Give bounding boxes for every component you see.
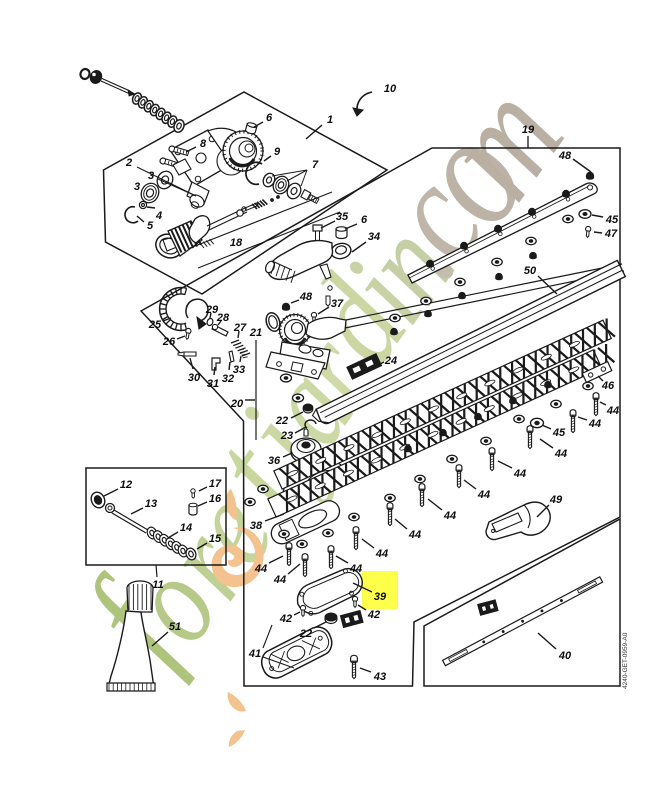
svg-text:22: 22 <box>299 628 312 640</box>
svg-text:7: 7 <box>312 159 319 171</box>
svg-text:49: 49 <box>549 494 563 506</box>
svg-text:23: 23 <box>280 430 293 442</box>
svg-text:28: 28 <box>216 312 230 324</box>
svg-text:44: 44 <box>606 405 619 417</box>
svg-text:43: 43 <box>373 671 386 683</box>
svg-text:34: 34 <box>368 231 380 243</box>
svg-text:9: 9 <box>274 146 281 158</box>
svg-text:40: 40 <box>558 650 572 662</box>
svg-text:42: 42 <box>279 613 292 625</box>
svg-text:16: 16 <box>209 493 222 505</box>
svg-text:12: 12 <box>120 479 132 491</box>
svg-text:44: 44 <box>375 548 388 560</box>
svg-text:22: 22 <box>275 415 288 427</box>
svg-text:44: 44 <box>477 489 490 501</box>
svg-text:33: 33 <box>233 364 245 376</box>
svg-text:45: 45 <box>552 427 566 439</box>
svg-text:50: 50 <box>524 265 537 277</box>
svg-text:42: 42 <box>367 609 380 621</box>
svg-text:13: 13 <box>145 498 157 510</box>
svg-text:3: 3 <box>134 181 140 193</box>
svg-text:20: 20 <box>230 398 244 410</box>
svg-text:35: 35 <box>336 211 349 223</box>
svg-text:39: 39 <box>374 591 387 603</box>
svg-text:10: 10 <box>384 83 397 95</box>
svg-text:14: 14 <box>180 522 192 534</box>
svg-text:44: 44 <box>254 563 267 575</box>
svg-text:4: 4 <box>155 210 162 222</box>
svg-text:44: 44 <box>513 468 526 480</box>
svg-text:36: 36 <box>268 455 281 467</box>
svg-text:1: 1 <box>327 114 333 126</box>
svg-text:37: 37 <box>331 298 344 310</box>
svg-text:17: 17 <box>209 478 222 490</box>
svg-text:41: 41 <box>248 648 261 660</box>
svg-text:44: 44 <box>588 418 601 430</box>
svg-text:27: 27 <box>233 322 247 334</box>
svg-text:44: 44 <box>554 448 567 460</box>
svg-text:47: 47 <box>604 228 618 240</box>
svg-text:8: 8 <box>200 138 207 150</box>
svg-text:31: 31 <box>207 378 219 390</box>
svg-text:44: 44 <box>349 563 362 575</box>
svg-text:21: 21 <box>249 327 262 339</box>
svg-text:2: 2 <box>125 157 132 169</box>
svg-text:30: 30 <box>188 372 201 384</box>
svg-text:11: 11 <box>152 579 163 591</box>
svg-text:44: 44 <box>408 529 421 541</box>
svg-text:44: 44 <box>273 574 286 586</box>
svg-text:26: 26 <box>162 336 176 348</box>
svg-text:6: 6 <box>266 112 273 124</box>
svg-text:48: 48 <box>558 150 572 162</box>
svg-text:48: 48 <box>299 291 313 303</box>
svg-text:6: 6 <box>361 214 368 226</box>
svg-text:5: 5 <box>147 220 154 232</box>
svg-text:3: 3 <box>148 170 154 182</box>
svg-text:15: 15 <box>209 533 222 545</box>
svg-text:46: 46 <box>601 380 615 392</box>
svg-text:19: 19 <box>522 124 535 136</box>
svg-text:24: 24 <box>384 355 397 367</box>
svg-text:25: 25 <box>148 319 162 331</box>
svg-text:18: 18 <box>230 237 243 249</box>
svg-text:45: 45 <box>605 214 619 226</box>
svg-text:44: 44 <box>443 510 456 522</box>
svg-text:38: 38 <box>250 520 263 532</box>
svg-text:4240-GET-0959-A0: 4240-GET-0959-A0 <box>622 632 629 689</box>
svg-text:51: 51 <box>169 621 181 633</box>
